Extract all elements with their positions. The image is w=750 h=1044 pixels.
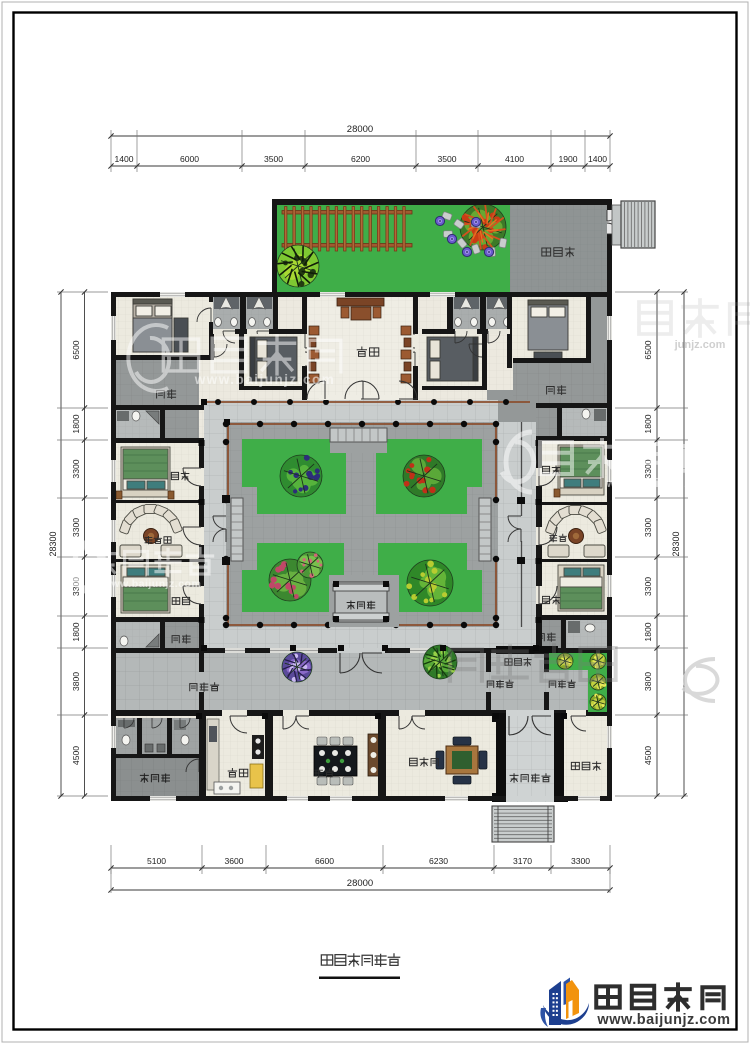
- svg-text:28300: 28300: [671, 531, 681, 556]
- svg-text:6000: 6000: [180, 154, 199, 164]
- svg-text:6500: 6500: [71, 340, 81, 359]
- svg-text:3800: 3800: [643, 672, 653, 691]
- svg-text:3500: 3500: [264, 154, 283, 164]
- svg-text:6500: 6500: [643, 340, 653, 359]
- svg-text:28000: 28000: [347, 878, 373, 889]
- svg-text:3600: 3600: [224, 856, 243, 866]
- svg-text:28000: 28000: [347, 124, 373, 135]
- svg-text:1800: 1800: [643, 622, 653, 641]
- svg-text:www.baijunjz.com: www.baijunjz.com: [194, 372, 336, 387]
- svg-text:3800: 3800: [71, 672, 81, 691]
- svg-text:3300: 3300: [71, 518, 81, 537]
- svg-text:6600: 6600: [315, 856, 334, 866]
- svg-text:junjz.com: junjz.com: [674, 339, 726, 351]
- svg-text:1900: 1900: [558, 154, 577, 164]
- svg-text:6200: 6200: [351, 154, 370, 164]
- svg-text:1800: 1800: [71, 622, 81, 641]
- svg-text:5100: 5100: [147, 856, 166, 866]
- svg-text:1400: 1400: [114, 154, 133, 164]
- svg-text:4500: 4500: [71, 746, 81, 765]
- svg-text:3300: 3300: [71, 459, 81, 478]
- svg-text:www.baijunjz.com: www.baijunjz.com: [605, 478, 721, 490]
- svg-text:1800: 1800: [71, 414, 81, 433]
- svg-text:4100: 4100: [505, 154, 524, 164]
- svg-text:6230: 6230: [429, 856, 448, 866]
- svg-text:3300: 3300: [643, 577, 653, 596]
- svg-text:3170: 3170: [513, 856, 532, 866]
- svg-text:4500: 4500: [643, 746, 653, 765]
- svg-text:1400: 1400: [588, 154, 607, 164]
- svg-text:www.baijunjz.com: www.baijunjz.com: [596, 1012, 730, 1028]
- svg-text:1800: 1800: [643, 414, 653, 433]
- svg-text:28300: 28300: [48, 531, 58, 556]
- svg-text:3300: 3300: [643, 518, 653, 537]
- svg-text:3300: 3300: [571, 856, 590, 866]
- svg-text:3500: 3500: [437, 154, 456, 164]
- svg-text:www.baijunjz.com: www.baijunjz.com: [102, 578, 202, 590]
